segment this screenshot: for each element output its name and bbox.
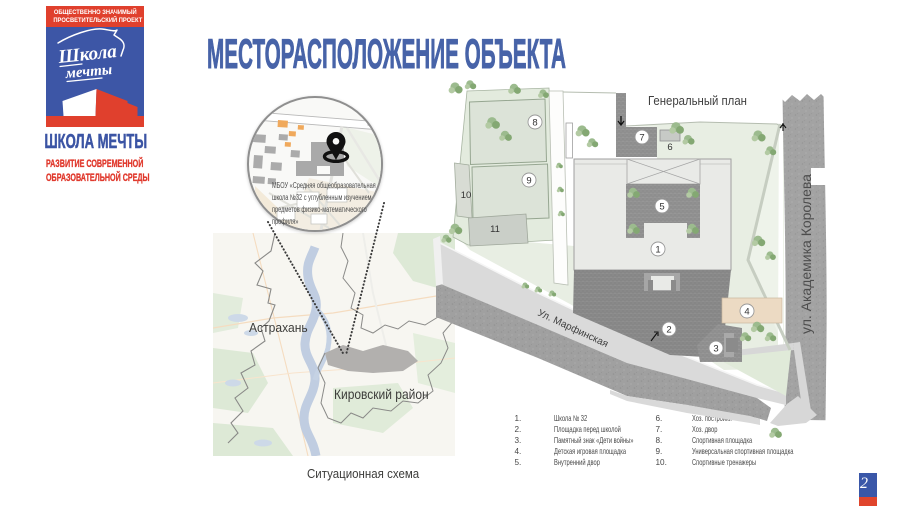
svg-text:5: 5: [659, 202, 664, 213]
svg-text:4: 4: [744, 307, 749, 318]
svg-text:1: 1: [655, 245, 660, 256]
svg-text:11: 11: [490, 224, 500, 235]
svg-text:ул. Академика Королева: ул. Академика Королева: [798, 174, 814, 334]
svg-text:3: 3: [713, 344, 718, 355]
svg-text:2: 2: [666, 325, 671, 336]
svg-text:6: 6: [667, 142, 672, 153]
svg-text:8: 8: [532, 118, 537, 129]
svg-text:Кировский район: Кировский район: [334, 386, 429, 402]
svg-text:7: 7: [639, 133, 644, 144]
svg-text:10: 10: [461, 190, 472, 201]
svg-text:9: 9: [526, 176, 531, 187]
